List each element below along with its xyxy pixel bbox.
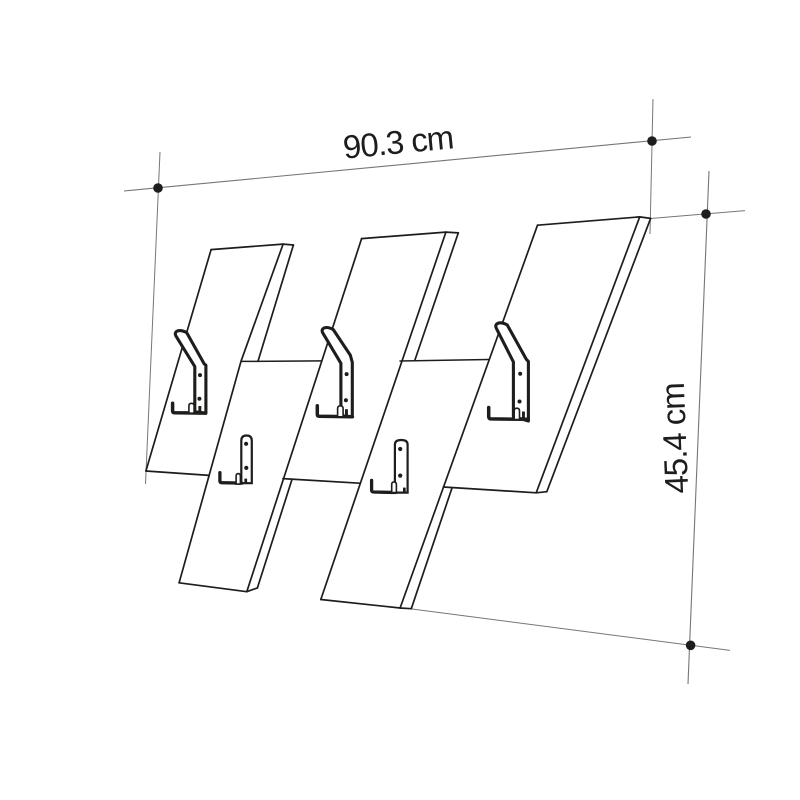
svg-text:45.4 cm: 45.4 cm: [654, 383, 695, 495]
